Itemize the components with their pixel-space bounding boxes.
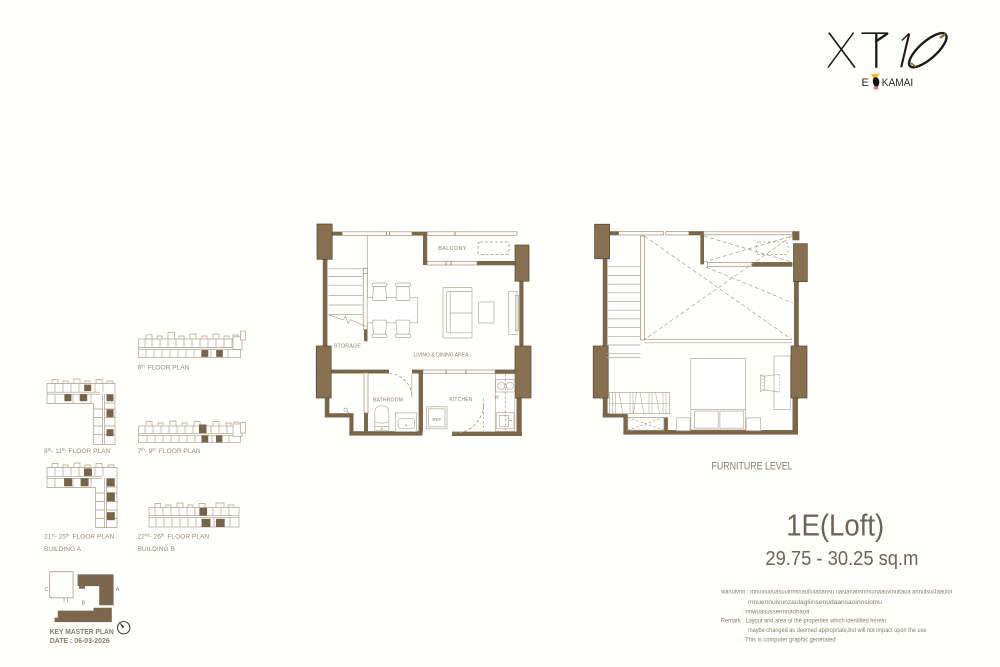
svg-text:REF: REF	[432, 417, 441, 422]
svg-text:BATHROOM: BATHROOM	[373, 398, 403, 404]
svg-text:7th- 9thFLOOR PLAN: 7th- 9thFLOOR PLAN	[138, 447, 201, 455]
svg-text:LIVING & DINING AREA: LIVING & DINING AREA	[414, 353, 470, 359]
svg-text:KITCHEN: KITCHEN	[449, 397, 473, 403]
svg-text:KEY MASTER PLAN: KEY MASTER PLAN	[50, 627, 114, 636]
svg-text:: nnwuasussennnaohaoa: : nnwuasussennnaohaoa	[742, 609, 810, 616]
svg-text:wanuivnn : mnuviuouasuuinnsnau: wanuivnn : mnuviuouasuuinnsnauiluianansu…	[720, 589, 952, 596]
svg-text:8th- 11thFLOOR PLAN: 8th- 11thFLOOR PLAN	[44, 447, 111, 455]
svg-text:BUILDING A: BUILDING A	[44, 546, 82, 553]
svg-text:FURNITURE LEVEL: FURNITURE LEVEL	[712, 461, 793, 473]
svg-text:maybe changed as deemed approp: maybe changed as deemed appropriate,but …	[748, 627, 927, 634]
svg-text:Remark : Layout and area of: Remark : Layout and area of the properti…	[721, 618, 886, 625]
svg-text:: This is computer graphic gen: : This is computer graphic generated	[742, 637, 836, 644]
svg-text:C: C	[45, 587, 49, 593]
svg-text:21st- 25thFLOOR PLAN: 21st- 25thFLOOR PLAN	[44, 533, 114, 541]
svg-text:BUILDING B: BUILDING B	[138, 546, 176, 553]
svg-text:1E(Loft): 1E(Loft)	[786, 508, 884, 543]
svg-text:STORAGE: STORAGE	[334, 344, 362, 350]
svg-text:A: A	[116, 587, 120, 593]
svg-text:29.75 - 30.25 sq.m: 29.75 - 30.25 sq.m	[765, 547, 918, 570]
svg-text:E: E	[862, 77, 869, 89]
svg-text:KAMAI: KAMAI	[882, 77, 914, 89]
svg-text:DATE : 06-03-2026: DATE : 06-03-2026	[50, 636, 110, 645]
svg-text:B: B	[82, 601, 86, 607]
svg-text:mnuennuivunzaulagliinsenudaans: mnuennuivunzaulagliinsenudaansaoinnsiotn…	[748, 599, 882, 606]
svg-text:BALCONY: BALCONY	[438, 246, 467, 252]
